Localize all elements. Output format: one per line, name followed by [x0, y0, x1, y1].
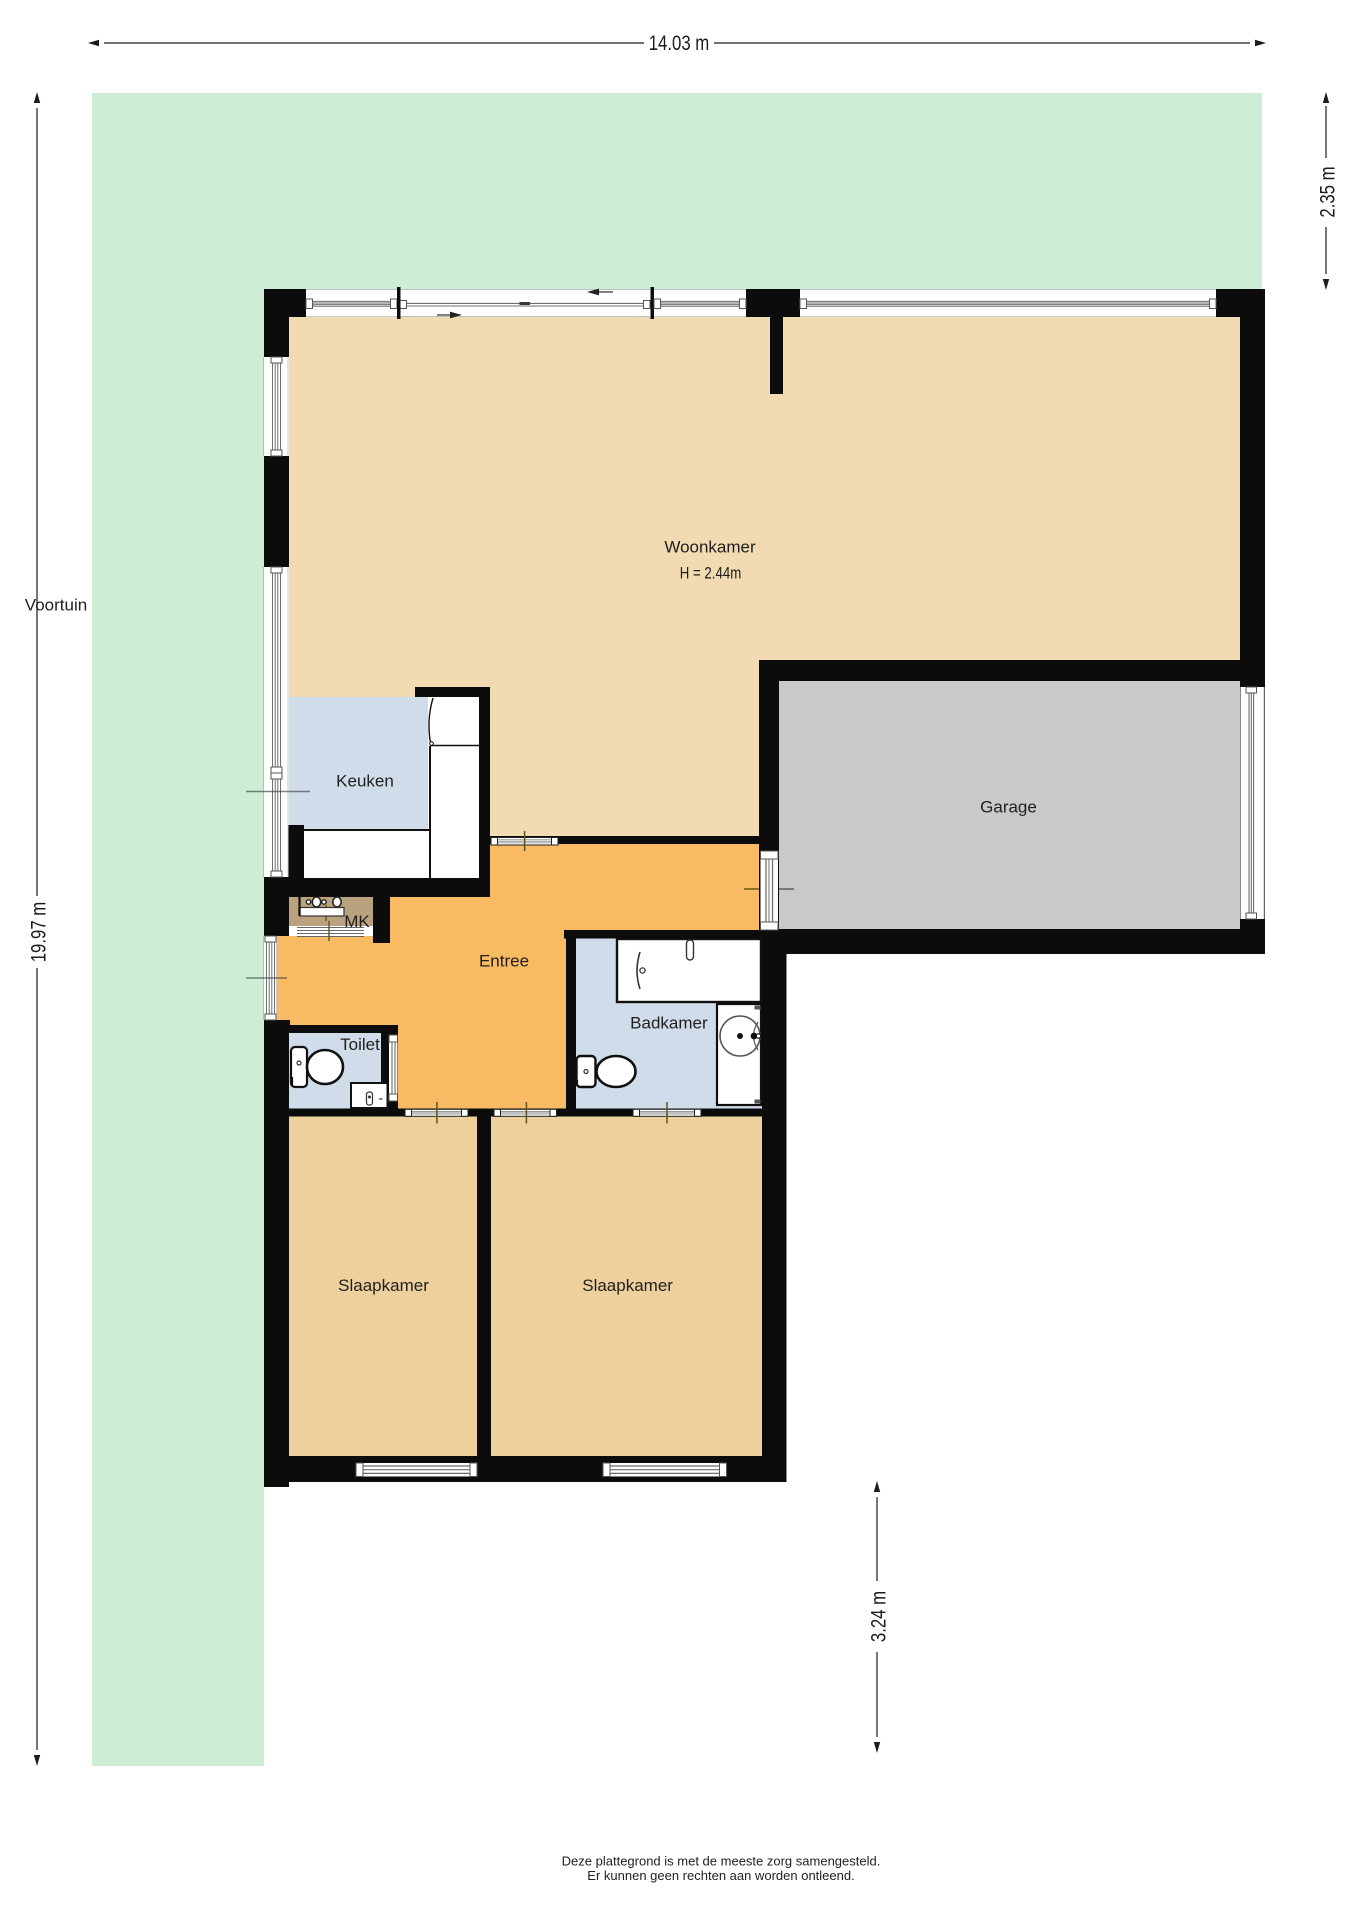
svg-text:14.03 m: 14.03 m: [649, 32, 710, 55]
svg-text:Entree: Entree: [479, 952, 529, 971]
svg-text:MK: MK: [344, 912, 370, 931]
svg-text:Er kunnen geen rechten aan wor: Er kunnen geen rechten aan worden ontlee…: [587, 1868, 854, 1883]
svg-text:Slaapkamer: Slaapkamer: [582, 1276, 673, 1295]
svg-text:19.97 m: 19.97 m: [28, 902, 51, 963]
svg-text:Woonkamer: Woonkamer: [664, 538, 756, 557]
svg-text:Voortuin: Voortuin: [25, 596, 87, 615]
svg-text:Keuken: Keuken: [336, 772, 394, 791]
svg-text:H = 2.44m: H = 2.44m: [680, 564, 742, 583]
svg-text:Slaapkamer: Slaapkamer: [338, 1276, 429, 1295]
svg-text:Toilet: Toilet: [340, 1035, 380, 1054]
svg-text:3.24 m: 3.24 m: [868, 1591, 891, 1642]
svg-text:Badkamer: Badkamer: [630, 1014, 708, 1033]
svg-text:Garage: Garage: [980, 798, 1037, 817]
svg-text:Deze plattegrond is met de mee: Deze plattegrond is met de meeste zorg s…: [562, 1853, 881, 1868]
svg-text:2.35 m: 2.35 m: [1317, 166, 1340, 217]
